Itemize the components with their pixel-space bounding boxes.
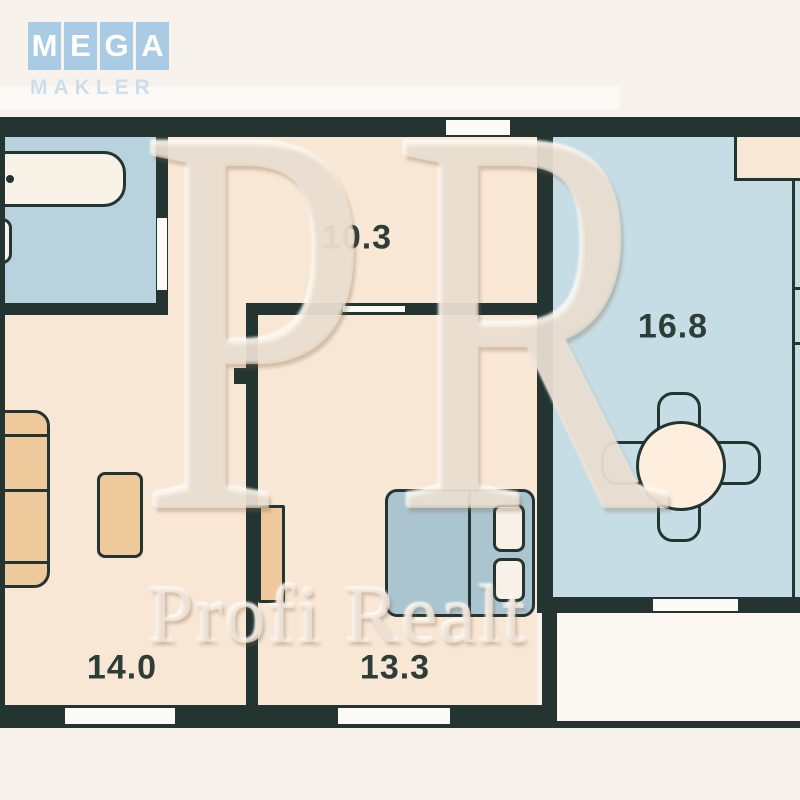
wall-bathroom-bottom [0, 303, 168, 315]
sofa-cushion-line [0, 489, 47, 492]
hallway-opening-floor [168, 303, 246, 315]
entrance-door [446, 120, 510, 135]
sofa-cushion-line [0, 561, 47, 564]
bedroom-window [338, 708, 450, 724]
logo-letter-tile: G [100, 22, 133, 70]
wall-right-thin [792, 181, 795, 597]
logo-subtitle: MAKLER [30, 76, 156, 100]
bedroom-door [343, 306, 405, 312]
mega-logo: M E G A [28, 22, 169, 70]
logo-letter-tile: E [64, 22, 97, 70]
sofa [0, 410, 50, 588]
room-left-window [65, 708, 175, 724]
pillow [493, 504, 525, 552]
balcony-floor [557, 613, 800, 721]
wall-right-stub [792, 342, 800, 345]
wall-top [0, 117, 800, 137]
armchair [97, 472, 143, 558]
balcony-window [653, 599, 738, 611]
bathtub [0, 151, 126, 207]
wardrobe [258, 505, 285, 603]
wall-room-right-left [537, 137, 553, 613]
bed-divider [468, 492, 471, 614]
bathroom-door [157, 218, 167, 290]
room-right-area-label: 16.8 [638, 308, 708, 347]
room-left-area-label: 14.0 [87, 649, 157, 688]
pillow [493, 558, 525, 602]
room-right-corner-notch [734, 137, 800, 181]
hallway-area-label: 10.3 [322, 219, 392, 258]
bed [385, 489, 535, 617]
sofa-cushion-line [0, 434, 47, 437]
wall-left [0, 117, 5, 728]
logo-letter-tile: M [28, 22, 61, 70]
wall-right-stub [792, 287, 800, 290]
bedroom-area-label: 13.3 [360, 649, 430, 688]
wall-balcony-bottom [557, 721, 800, 728]
floorplan-canvas: 10.3 16.8 14.0 13.3 PR Profi Realt MAKLE… [0, 0, 800, 800]
bathtub-faucet-icon [6, 175, 14, 183]
dining-table [636, 421, 726, 511]
logo-letter-tile: A [136, 22, 169, 70]
wall-stub [234, 368, 248, 384]
